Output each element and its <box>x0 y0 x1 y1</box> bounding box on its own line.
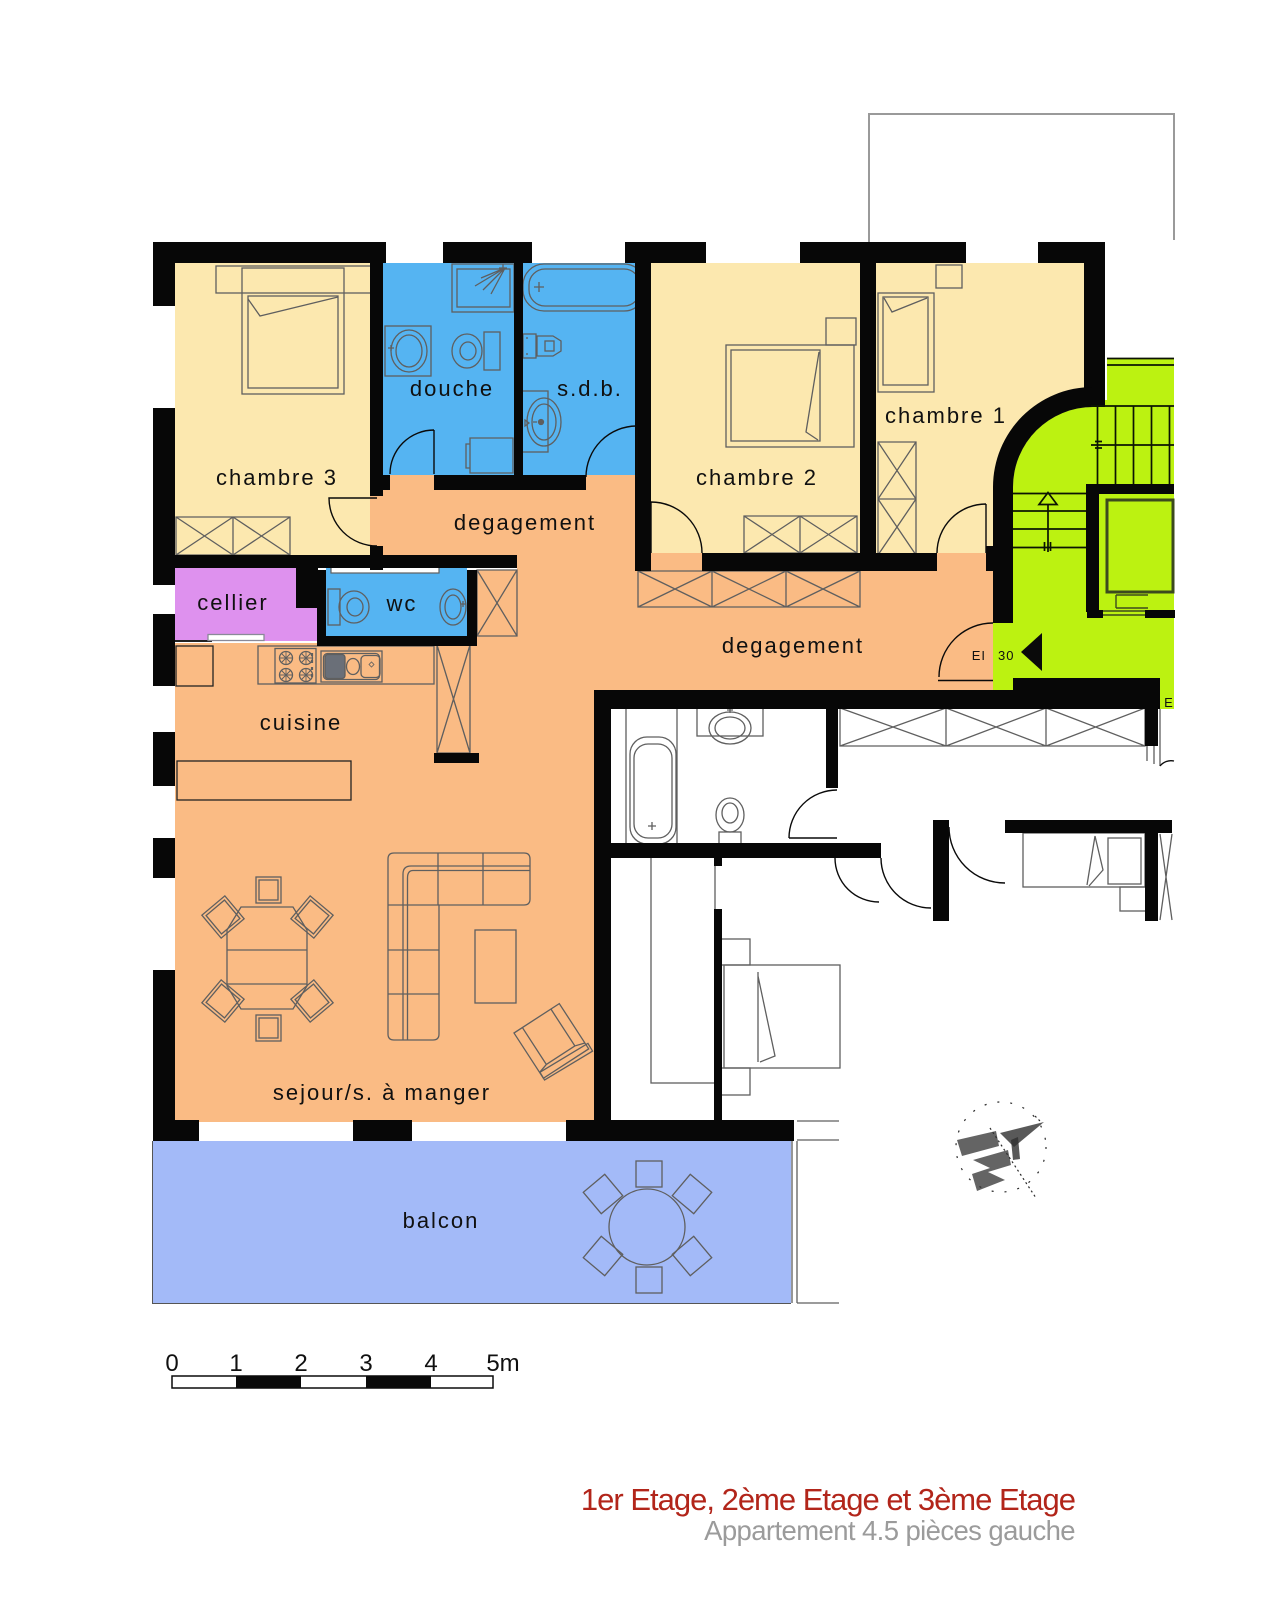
svg-text:cellier: cellier <box>197 590 268 615</box>
svg-text:30: 30 <box>998 648 1014 663</box>
svg-text:Appartement 4.5 pièces gauche: Appartement 4.5 pièces gauche <box>704 1515 1075 1546</box>
svg-text:1: 1 <box>229 1350 242 1377</box>
svg-text:5m: 5m <box>486 1350 519 1377</box>
svg-text:chambre 3: chambre 3 <box>216 465 338 490</box>
svg-text:3: 3 <box>359 1350 372 1377</box>
svg-text:chambre 1: chambre 1 <box>885 403 1007 428</box>
svg-text:4: 4 <box>424 1350 437 1377</box>
svg-text:1er Etage, 2ème Etage et 3ème: 1er Etage, 2ème Etage et 3ème Etage <box>581 1482 1075 1517</box>
svg-text:wc: wc <box>386 591 418 616</box>
svg-text:s.d.b.: s.d.b. <box>557 376 623 401</box>
svg-text:degagement: degagement <box>454 510 596 535</box>
svg-text:cuisine: cuisine <box>260 710 342 735</box>
svg-text:2: 2 <box>294 1350 307 1377</box>
svg-text:0: 0 <box>165 1350 178 1377</box>
svg-text:sejour/s. à manger: sejour/s. à manger <box>273 1080 491 1105</box>
svg-text:E: E <box>1164 695 1174 710</box>
svg-text:EI: EI <box>972 648 986 663</box>
svg-text:douche: douche <box>410 376 494 401</box>
svg-text:balcon: balcon <box>403 1208 480 1233</box>
svg-text:degagement: degagement <box>722 633 864 658</box>
svg-text:chambre 2: chambre 2 <box>696 465 818 490</box>
